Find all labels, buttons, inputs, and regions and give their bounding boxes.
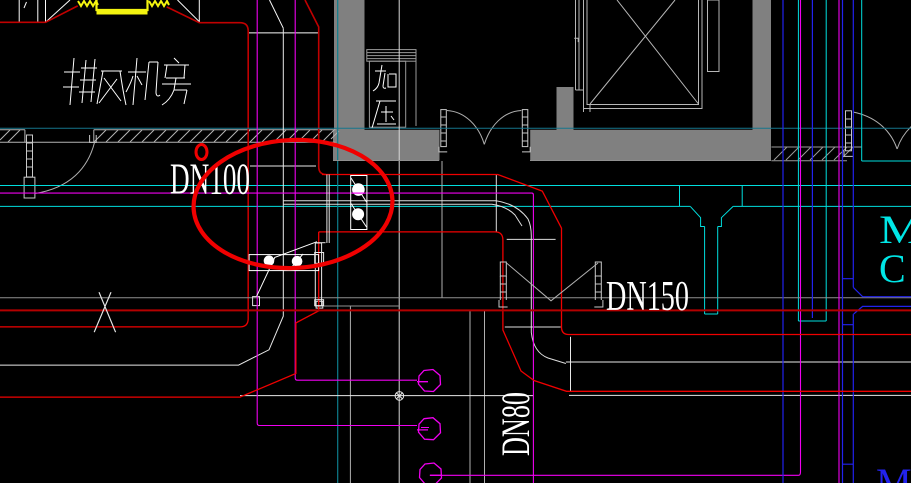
svg-text:DN150: DN150 [606,274,689,320]
svg-text:DN80: DN80 [493,392,538,456]
svg-text:M: M [876,460,911,483]
svg-text:C: C [879,246,906,291]
svg-text:DN100: DN100 [170,155,250,204]
